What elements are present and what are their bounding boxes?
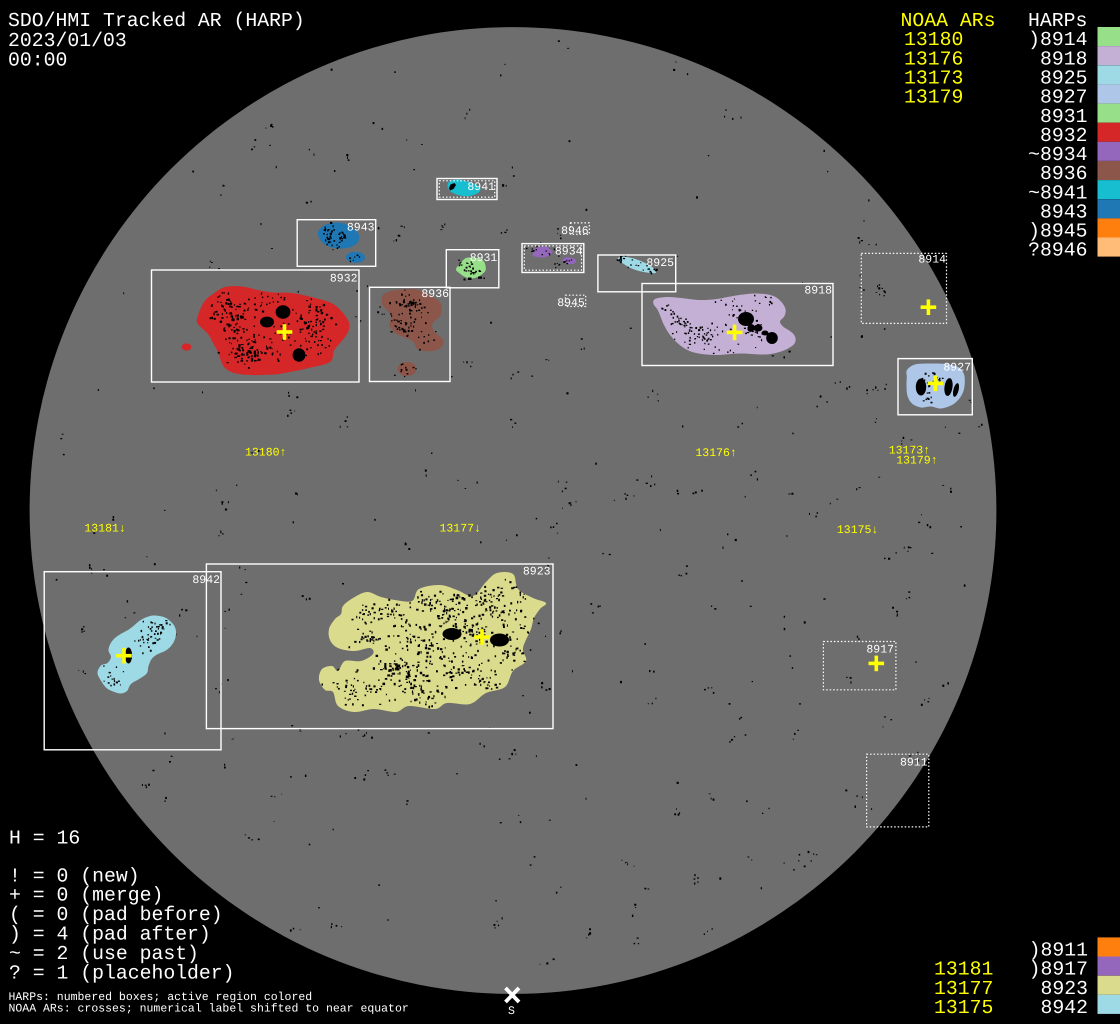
svg-text:S: S [508,1005,515,1018]
svg-text:13177↓: 13177↓ [440,522,481,535]
svg-text:13176↑: 13176↑ [695,447,736,460]
svg-text:13179: 13179 [904,87,963,109]
svg-text:NOAA ARs: crosses; numerical l: NOAA ARs: crosses; numerical label shift… [9,1002,409,1015]
svg-text:8927: 8927 [943,361,971,374]
svg-text:SDO/HMI Tracked AR (HARP): SDO/HMI Tracked AR (HARP) [8,10,305,32]
svg-text:8941: 8941 [467,181,495,194]
svg-text:? = 1 (placeholder): ? = 1 (placeholder) [9,962,235,984]
svg-text:8932: 8932 [330,273,358,286]
svg-text:8931: 8931 [470,252,498,265]
svg-text:H = 16: H = 16 [9,828,80,850]
svg-text:8925: 8925 [646,257,674,270]
svg-text:8936: 8936 [421,288,449,301]
svg-text:8918: 8918 [804,285,832,298]
svg-text:13175↓: 13175↓ [837,524,878,537]
svg-text:8945: 8945 [557,297,585,310]
svg-text:13180↑: 13180↑ [245,447,286,460]
svg-text:13179↑: 13179↑ [896,455,937,468]
svg-text:8946: 8946 [561,225,589,238]
svg-text:8943: 8943 [347,222,375,235]
svg-text:8917: 8917 [866,644,894,657]
svg-text:8914: 8914 [918,254,946,267]
svg-text:13175: 13175 [934,997,993,1019]
svg-text:?8946: ?8946 [1028,240,1087,262]
svg-text:8911: 8911 [900,757,928,770]
svg-text:8942: 8942 [1041,997,1088,1019]
svg-text:8923: 8923 [523,565,551,578]
svg-text:13181↓: 13181↓ [84,523,125,536]
svg-text:00:00: 00:00 [8,50,67,72]
svg-text:8934: 8934 [555,245,583,258]
